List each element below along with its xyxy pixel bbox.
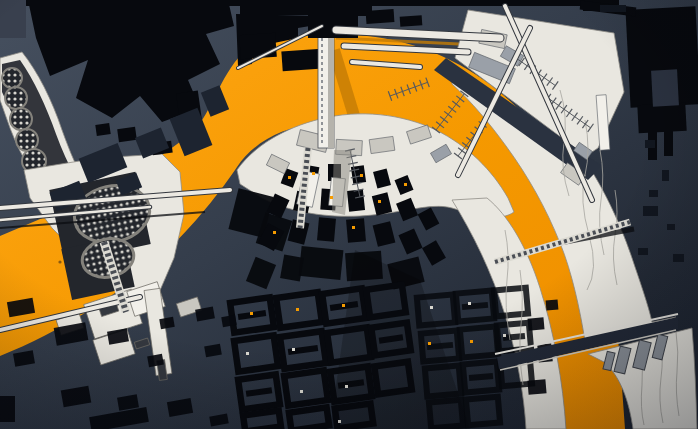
architectural-model-photo bbox=[0, 0, 698, 429]
photo-vignette bbox=[0, 0, 698, 429]
model-photo-canvas bbox=[0, 0, 698, 429]
